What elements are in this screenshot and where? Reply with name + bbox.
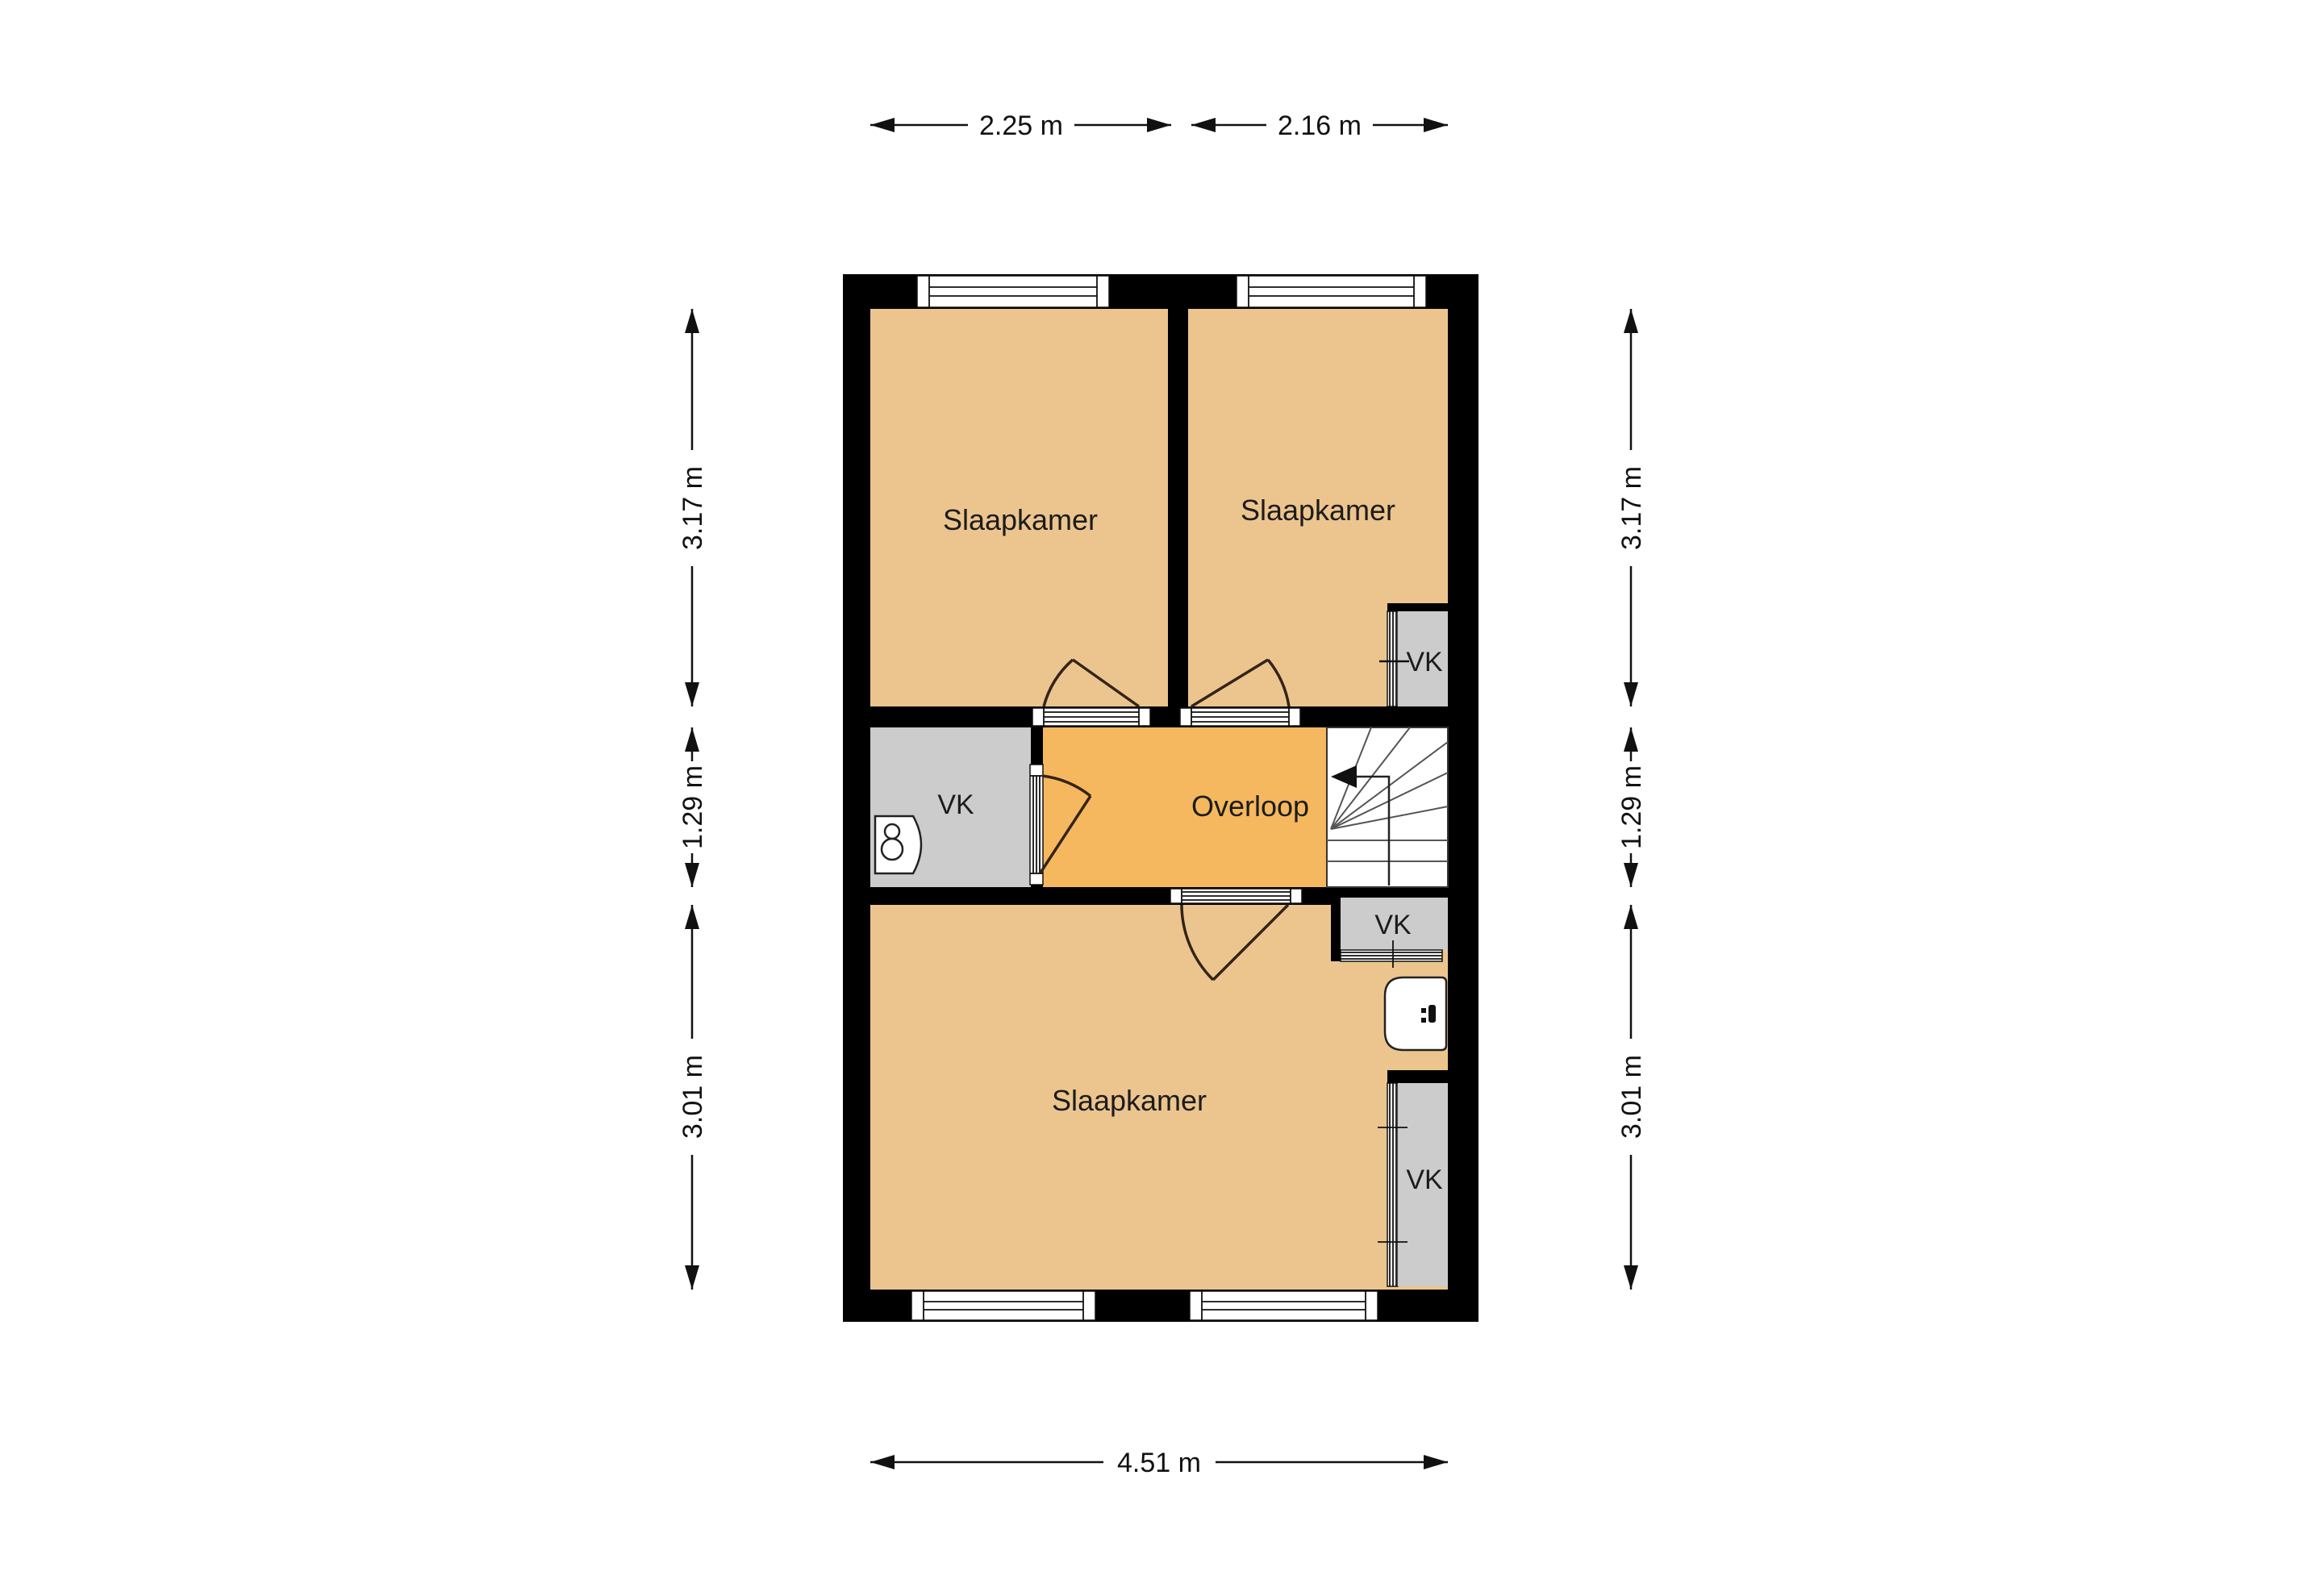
dimension-left-3: 3.01 m [678,905,708,1290]
dimension-right-3: 3.01 m [1616,905,1647,1290]
dimension-label: 3.17 m [678,466,708,550]
room-label-landing: Overloop [1191,790,1309,823]
dimension-right-1: 3.17 m [1616,309,1647,706]
exterior-wall-left [843,274,870,1322]
dimension-top-2: 2.16 m [1191,110,1448,141]
dimension-label: 3.17 m [1616,466,1647,550]
door-threshold [1180,708,1300,726]
room-label-bedroom-bottom: Slaapkamer [1052,1084,1207,1117]
wall-between-top-bedrooms [1168,309,1188,727]
room-label-closet-middle-left: VK [937,790,974,820]
wall-above-closet-bottom-right [1387,1070,1448,1083]
floor-plan-svg: Slaapkamer Slaapkamer Slaapkamer Overloo… [0,0,2323,1592]
window-icon [1237,276,1426,307]
washing-machine-icon [875,816,921,873]
dimension-label: 3.01 m [678,1055,708,1139]
room-label-closet-top-right: VK [1406,647,1443,677]
room-label-closet-toilet: VK [1374,910,1412,940]
window-icon [917,276,1109,307]
wall-above-closet-top-right [1387,603,1448,611]
dimension-top-1: 2.25 m [870,110,1171,141]
dimension-label: 4.51 m [1117,1448,1201,1478]
window-icon [911,1291,1095,1320]
window-icon [1190,1291,1378,1320]
floor-plan-page: Slaapkamer Slaapkamer Slaapkamer Overloo… [0,0,2323,1592]
dimension-label: 2.16 m [1278,110,1362,141]
dimension-right-2: 1.29 m [1616,727,1647,887]
dimension-label: 1.29 m [678,765,708,849]
dimension-label: 1.29 m [1616,765,1647,849]
room-label-closet-bottom-right: VK [1406,1165,1443,1195]
dimension-left-2: 1.29 m [678,727,708,887]
stairs-icon [1327,727,1448,887]
exterior-wall-right [1448,274,1478,1322]
toilet-icon [1385,977,1446,1050]
door-threshold [1170,889,1302,903]
dimension-label: 2.25 m [979,110,1063,141]
room-label-bedroom-top-left: Slaapkamer [943,503,1098,536]
dimension-label: 3.01 m [1616,1055,1647,1139]
door-threshold [1030,765,1043,885]
door-threshold [1032,708,1150,726]
wall-stub-toilet-closet [1331,887,1341,961]
wall-below-top-bedrooms [870,706,1448,727]
wall-below-stairs [1327,887,1448,898]
dimension-left-1: 3.17 m [678,309,708,706]
room-label-bedroom-top-right: Slaapkamer [1241,494,1395,527]
dimension-bottom: 4.51 m [870,1448,1448,1478]
